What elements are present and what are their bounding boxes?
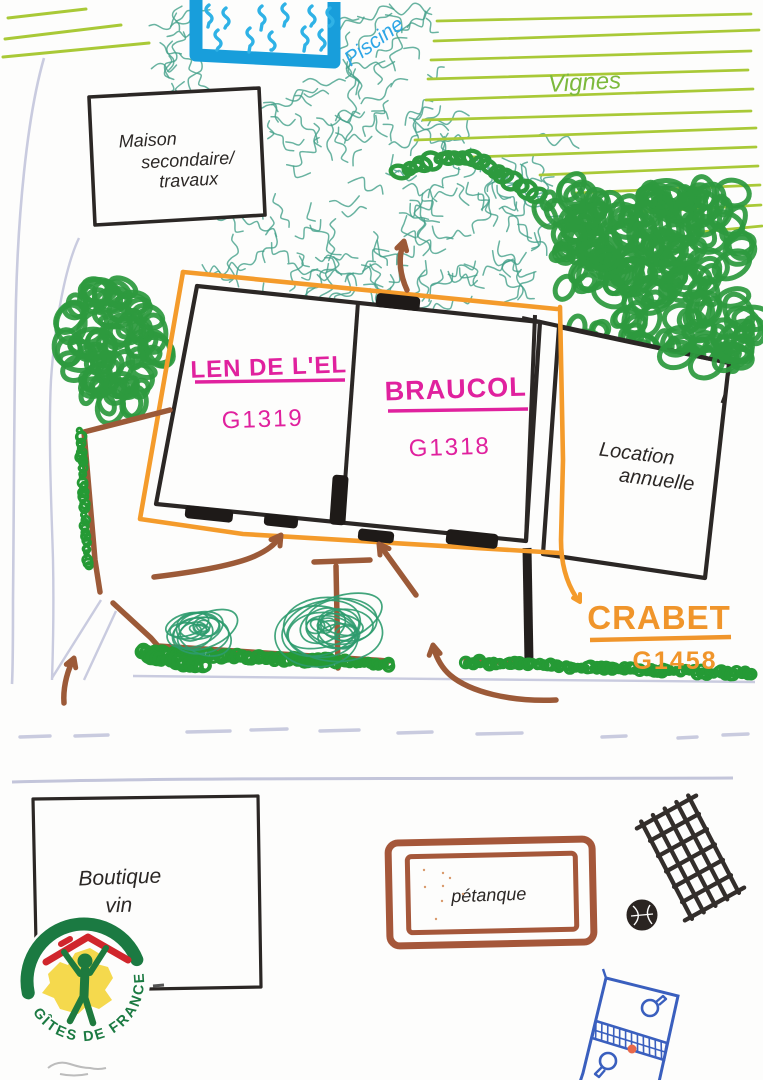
svg-text:BRAUCOL: BRAUCOL (384, 372, 527, 407)
svg-text:G1458: G1458 (632, 647, 717, 675)
svg-text:Maison: Maison (118, 129, 177, 152)
svg-text:Vignes: Vignes (547, 67, 621, 98)
svg-text:vin: vin (105, 894, 133, 918)
svg-text:G1319: G1319 (221, 405, 304, 435)
svg-text:CRABET: CRABET (587, 599, 731, 636)
svg-text:G1318: G1318 (408, 433, 491, 463)
svg-text:Boutique: Boutique (78, 865, 162, 891)
svg-text:pétanque: pétanque (450, 884, 527, 907)
svg-text:travaux: travaux (159, 168, 220, 191)
